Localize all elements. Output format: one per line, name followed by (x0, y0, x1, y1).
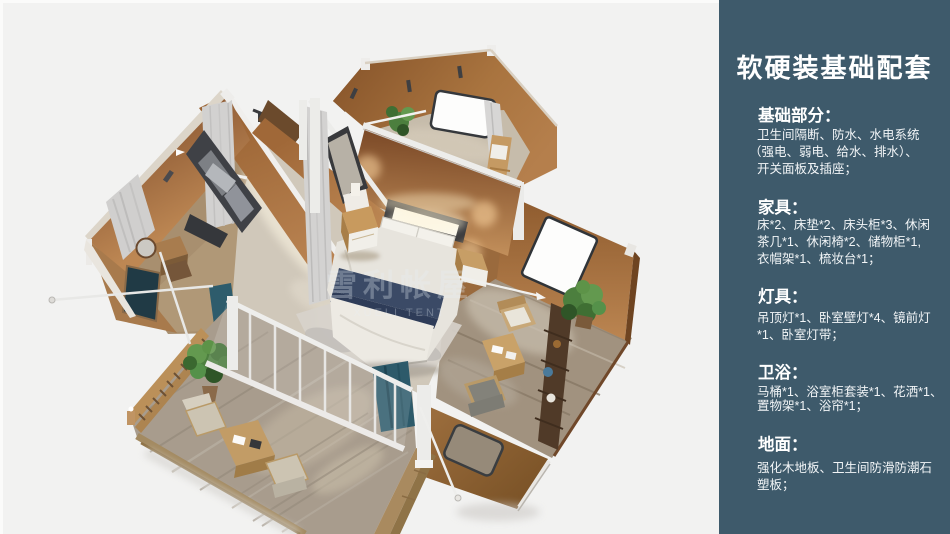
svg-text:XUELI TENT: XUELI TENT (353, 307, 446, 319)
svg-text:雪利帐屋: 雪利帐屋 (326, 268, 474, 303)
